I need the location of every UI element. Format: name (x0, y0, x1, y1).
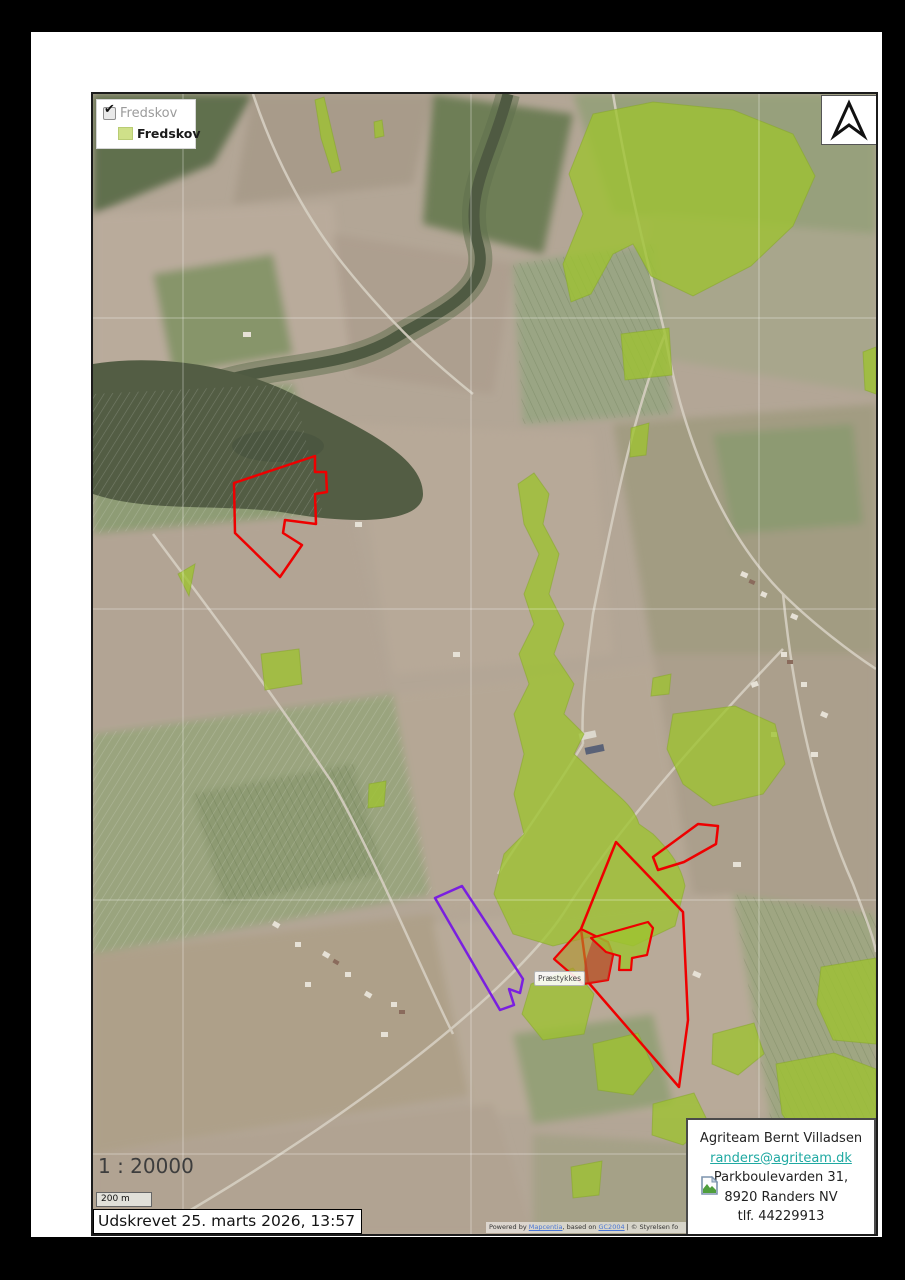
print-page: ✔ Fredskov Fredskov Præstykkes 1 : 20000… (31, 32, 882, 1237)
legend-layer-row: ✔ Fredskov (103, 106, 191, 121)
attribution-middle: , based on (563, 1223, 599, 1231)
company-phone: tlf. 44229913 (688, 1207, 874, 1227)
company-info-box: Agriteam Bernt Villadsen randers@agritea… (686, 1118, 876, 1236)
scale-bar-label: 200 m (101, 1194, 130, 1204)
attribution-suffix: | © Styrelsen fo (625, 1223, 679, 1231)
aerial-basemap (93, 94, 876, 1234)
company-name: Agriteam Bernt Villadsen (688, 1129, 874, 1149)
image-placeholder-icon (701, 1176, 718, 1195)
checkbox-check-icon: ✔ (104, 102, 115, 117)
attribution-prefix: Powered by (489, 1223, 529, 1231)
map-canvas[interactable]: ✔ Fredskov Fredskov Præstykkes 1 : 20000… (91, 92, 878, 1236)
legend-symbol-row: Fredskov (118, 126, 191, 141)
legend-symbol-label: Fredskov (137, 126, 200, 141)
legend-layer-label: Fredskov (120, 106, 177, 121)
print-preview: { "legend": { "layer": { "label": "Freds… (0, 0, 905, 1280)
attribution-link-gc2[interactable]: GC2004 (598, 1223, 624, 1231)
layer-checkbox[interactable]: ✔ (103, 107, 116, 120)
scale-ratio-text: 1 : 20000 (98, 1154, 194, 1178)
scale-bar: 200 m (96, 1192, 152, 1207)
legend: ✔ Fredskov Fredskov (96, 99, 196, 149)
fredskov-swatch-icon (118, 127, 133, 140)
attribution-link-mapcentia[interactable]: Mapcentia (529, 1223, 563, 1231)
company-email-link[interactable]: randers@agriteam.dk (710, 1151, 852, 1166)
north-arrow-box (821, 95, 877, 145)
printed-timestamp: Udskrevet 25. marts 2026, 13:57 (93, 1209, 362, 1234)
feature-label-praestykkes: Præstykkes (534, 971, 585, 986)
north-arrow-icon (826, 99, 872, 141)
